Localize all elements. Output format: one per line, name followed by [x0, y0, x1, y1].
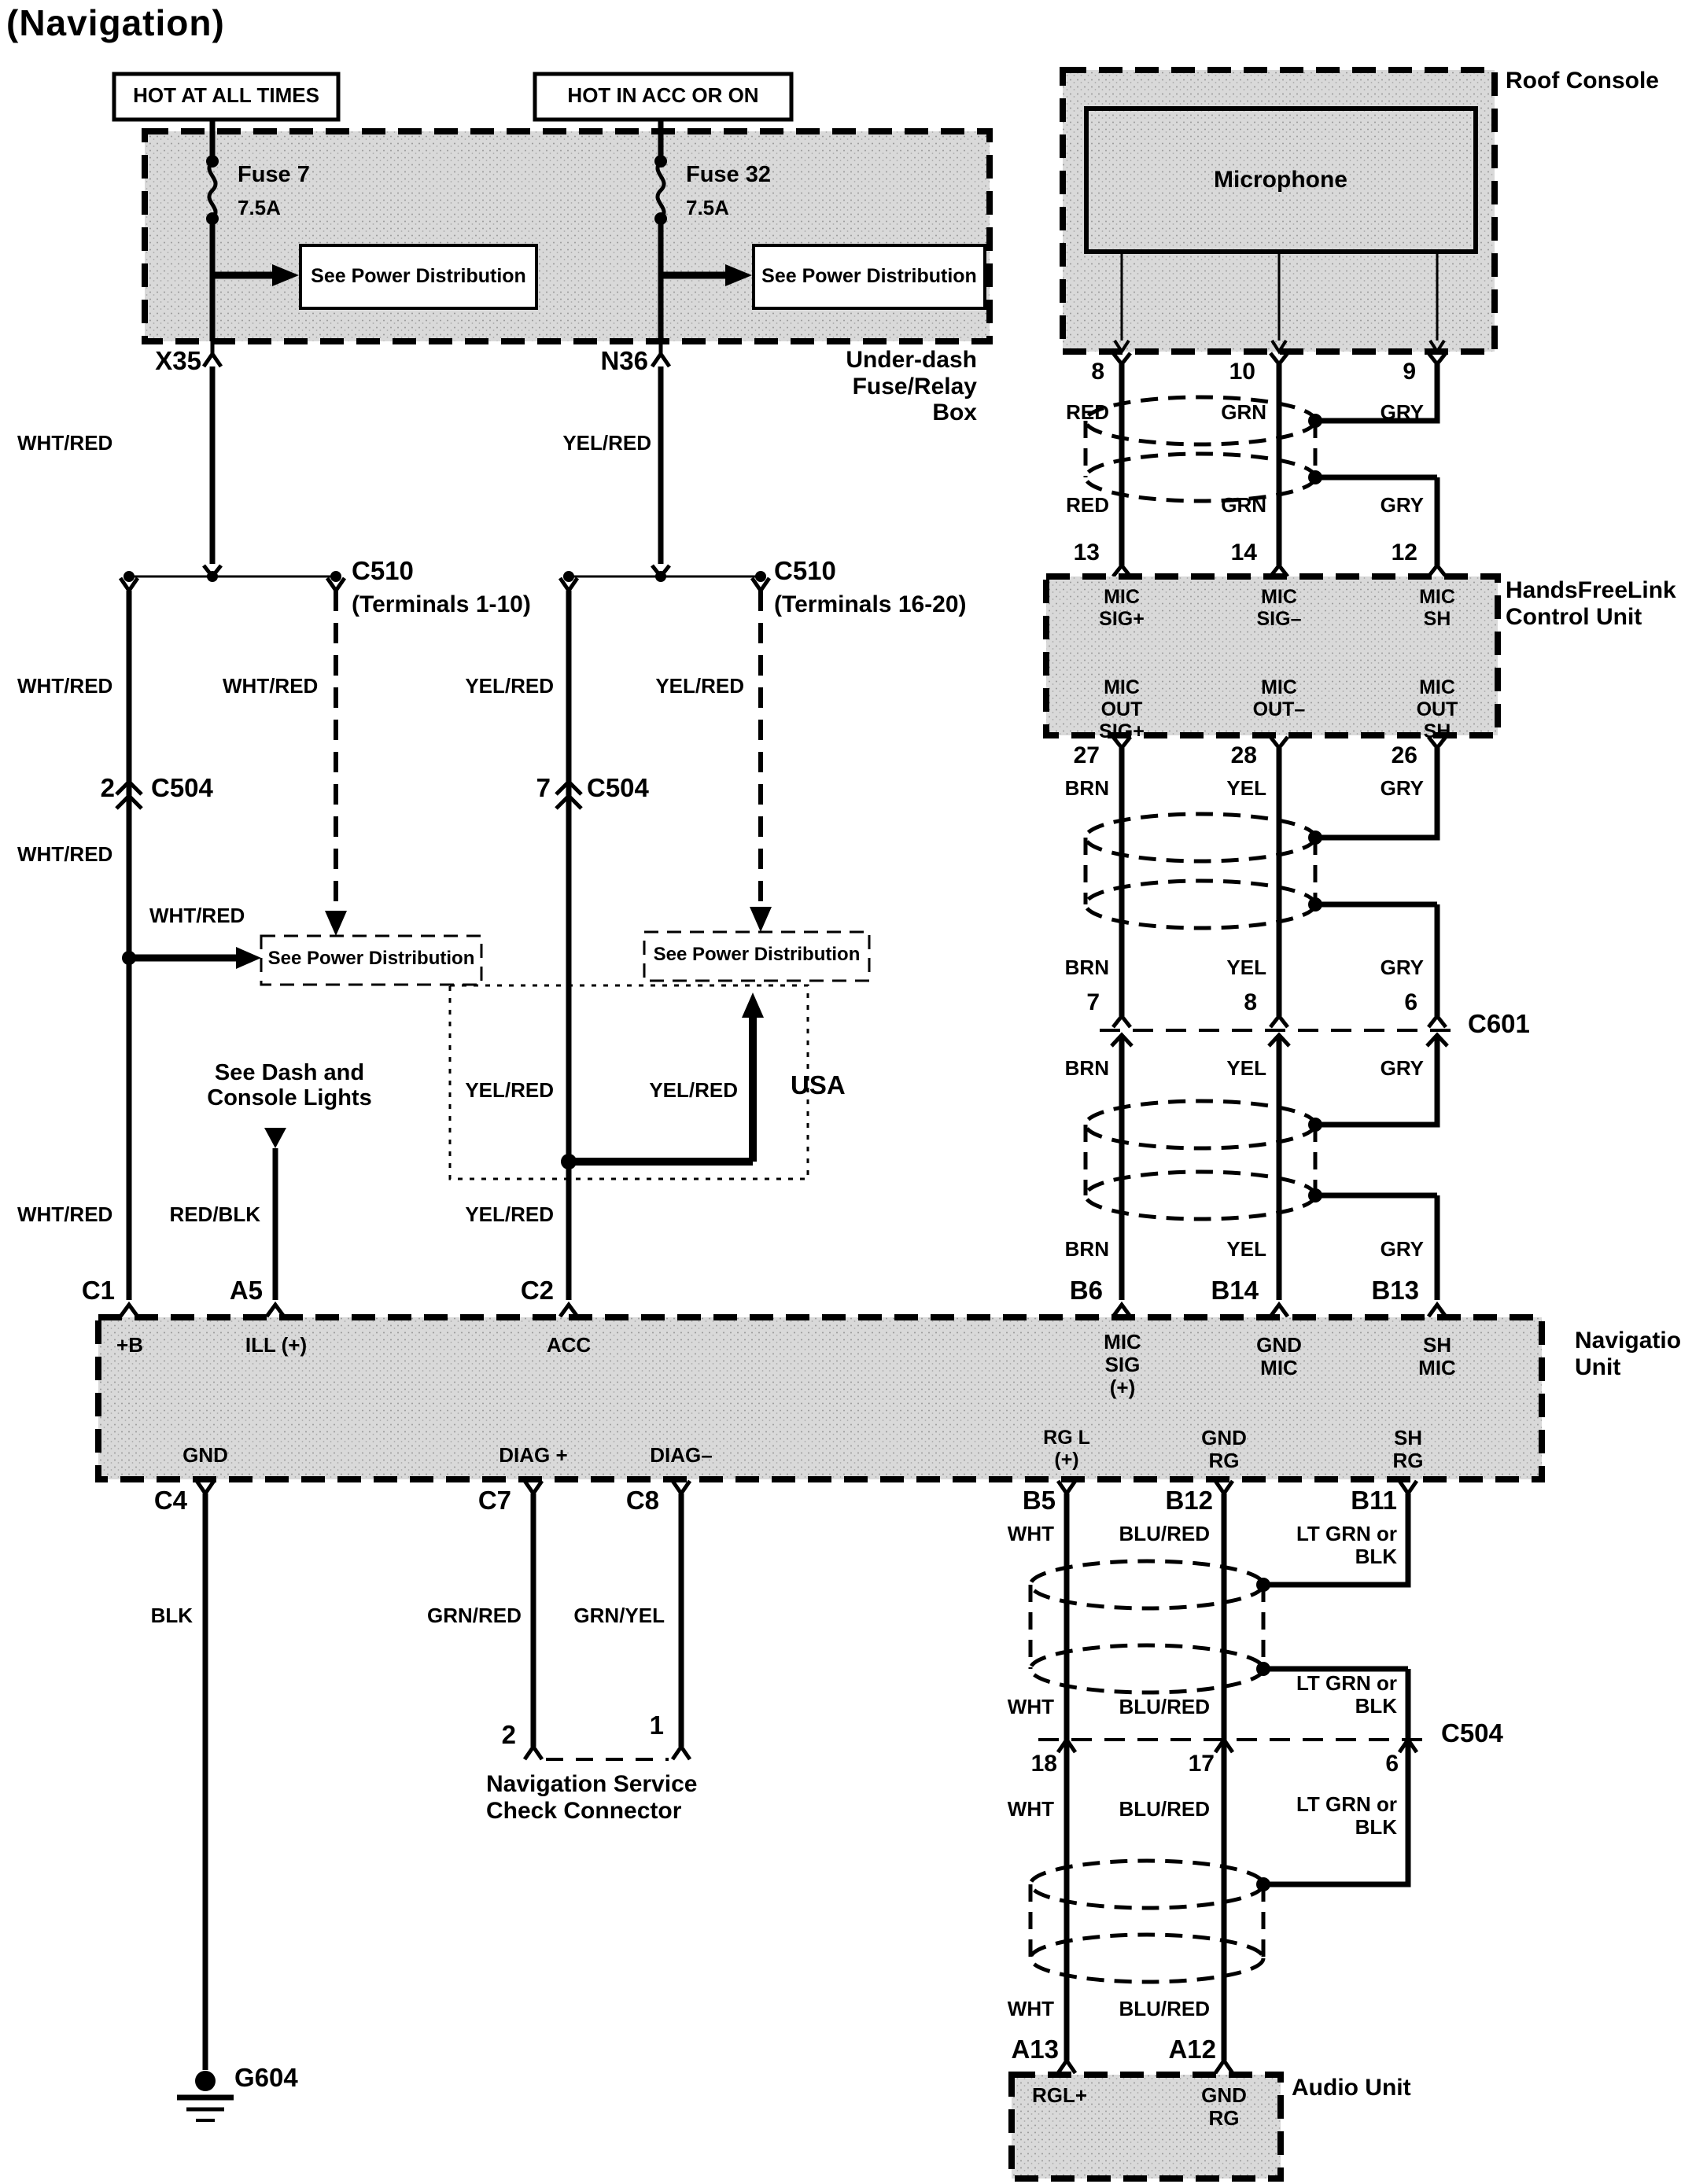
wire-gry-2: GRY [1336, 494, 1424, 517]
c510-left-dashed-branch [261, 591, 481, 985]
hot-at-all-times-label: HOT AT ALL TIMES [114, 84, 338, 107]
nav-pin-b12: B12 [1147, 1486, 1213, 1516]
c504-right-pin: 7 [513, 774, 551, 803]
handsfreelink-label: HandsFreeLink Control Unit [1506, 577, 1681, 630]
connector-c504-left: C504 [151, 774, 245, 803]
hfl-signal-mic-sig-minus: MIC SIG– [1250, 586, 1308, 630]
nav-pin-b11: B11 [1328, 1486, 1397, 1516]
connector-x35: X35 [116, 347, 201, 376]
fuse32-rating: 7.5A [686, 197, 780, 219]
mic-pin-10: 10 [1207, 359, 1255, 385]
see-power-distribution-1: See Power Distribution [304, 265, 533, 287]
nav-pin-c1: C1 [72, 1276, 115, 1306]
connector-c510-left-terminals: (Terminals 1-10) [352, 591, 588, 618]
microphone-label: Microphone [1123, 167, 1438, 193]
wire-blu-red-1: BLU/RED [1106, 1523, 1210, 1545]
hfl-pin-27: 27 [1051, 742, 1100, 769]
c601-pin-6: 6 [1366, 989, 1417, 1016]
wire-brn-2: BRN [1021, 956, 1109, 979]
mic-pin-9: 9 [1378, 359, 1416, 385]
wire-wht-3: WHT [974, 1798, 1054, 1821]
dash-lights-wire [264, 1128, 286, 1317]
hfl-pin-28: 28 [1205, 742, 1257, 769]
nav-pin-c7: C7 [466, 1486, 511, 1516]
wire-wht-red-2: WHT/RED [17, 675, 112, 698]
connector-n36: N36 [560, 347, 648, 376]
hfl-pin-26: 26 [1366, 742, 1417, 769]
x35-wire [204, 341, 221, 576]
c510-right-junction [560, 571, 769, 591]
wire-wht-red-6: WHT/RED [17, 1203, 112, 1226]
wire-brn-4: BRN [1021, 1238, 1109, 1261]
wire-gry-6: GRY [1336, 1238, 1424, 1261]
audio-unit-label: Audio Unit [1292, 2075, 1488, 2101]
nav-pin-c2: C2 [508, 1276, 554, 1306]
nav-signal-rg-l: RG L (+) [1043, 1427, 1090, 1471]
wire-yel-red-4: YEL/RED [463, 1079, 554, 1102]
wire-yel-4: YEL [1178, 1238, 1266, 1261]
c504-left-pin: 2 [77, 774, 115, 803]
wiring-diagram-page: (Navigation) HOT AT ALL TIMES HOT IN ACC… [0, 0, 1681, 2184]
wire-yel-red-2: YEL/RED [463, 675, 554, 698]
wire-red-blk: RED/BLK [168, 1203, 260, 1226]
fuse32-name: Fuse 32 [686, 162, 820, 187]
wire-wht-red-5: WHT/RED [149, 904, 244, 927]
connector-c510-left: C510 [352, 557, 454, 586]
connector-c601: C601 [1468, 1010, 1562, 1039]
wire-grn-yel: GRN/YEL [573, 1604, 665, 1627]
hfl-signal-mic-sh: MIC SH [1408, 586, 1466, 630]
wire-gry-4: GRY [1336, 956, 1424, 979]
audio-pin-a13: A13 [991, 2035, 1059, 2064]
nav-pin-b5: B5 [1005, 1486, 1056, 1516]
nav-pin-b14: B14 [1193, 1276, 1259, 1306]
usa-label: USA [791, 1071, 869, 1100]
connector-c504-lower: C504 [1441, 1719, 1535, 1748]
wire-brn-3: BRN [1021, 1057, 1109, 1080]
nav-signal-sh-mic: SH MIC [1413, 1334, 1462, 1379]
hfl-pin-13: 13 [1051, 540, 1100, 566]
wire-lt-grn-blk-3: LT GRN or BLK [1290, 1793, 1397, 1839]
audio-signal-rgl: RGL+ [1032, 2084, 1119, 2107]
wire-blk: BLK [105, 1604, 193, 1627]
wire-grn-red: GRN/RED [427, 1604, 519, 1627]
roof-console-label: Roof Console [1506, 68, 1679, 94]
nav-signal-mic-sig: MIC SIG (+) [1098, 1331, 1147, 1399]
fuse7-name: Fuse 7 [238, 162, 363, 187]
page-title: (Navigation) [6, 3, 352, 44]
nscc-pin-2: 2 [477, 1721, 516, 1750]
c504-lower-pin-18: 18 [1008, 1751, 1057, 1777]
nav-signal-gnd-mic: GND MIC [1252, 1334, 1306, 1379]
hfl-signal-mic-out-minus: MIC OUT– [1250, 676, 1308, 720]
nav-signal-plus-b: +B [105, 1334, 154, 1357]
hfl-signal-mic-out-sh: MIC OUT SH [1402, 676, 1473, 742]
nav-signal-diag-minus: DIAG– [643, 1444, 719, 1467]
wire-wht-red-4: WHT/RED [17, 843, 112, 866]
nscc-label: Navigation Service Check Connector [486, 1771, 706, 1824]
wire-wht-4: WHT [974, 1998, 1054, 2020]
see-power-distribution-2: See Power Distribution [755, 265, 983, 287]
connector-c510-right-terminals: (Terminals 16-20) [774, 591, 1026, 618]
fuse7-rating: 7.5A [238, 197, 332, 219]
wire-grn-2: GRN [1178, 494, 1266, 517]
audio-signal-gnd-rg: GND RG [1196, 2084, 1252, 2130]
wire-wht-1: WHT [974, 1523, 1054, 1545]
nav-pin-c8: C8 [614, 1486, 659, 1516]
n36-wire [652, 341, 669, 576]
hot-in-acc-or-on-label: HOT IN ACC OR ON [535, 84, 791, 107]
wire-yel-2: YEL [1178, 956, 1266, 979]
wire-brn-1: BRN [1021, 777, 1109, 800]
wire-wht-red-3: WHT/RED [223, 675, 315, 698]
wire-red-1: RED [1021, 401, 1109, 424]
c504-lower-pin-6: 6 [1350, 1751, 1399, 1777]
c601-pin-7: 7 [1051, 989, 1100, 1016]
navigation-unit-label: Navigation Unit [1575, 1328, 1681, 1380]
wire-yel-red-1: YEL/RED [560, 432, 651, 455]
wire-blu-red-2: BLU/RED [1106, 1696, 1210, 1718]
ground-g604-label: G604 [234, 2064, 337, 2093]
wire-lt-grn-blk-1: LT GRN or BLK [1290, 1523, 1397, 1568]
wire-gry-5: GRY [1336, 1057, 1424, 1080]
nav-signal-acc: ACC [535, 1334, 603, 1357]
wire-yel-red-6: YEL/RED [463, 1203, 554, 1226]
wire-gry-1: GRY [1336, 401, 1424, 424]
mic-grn-wire [1270, 364, 1288, 576]
see-power-distribution-3: See Power Distribution [265, 948, 477, 970]
wire-red-2: RED [1021, 494, 1109, 517]
audio-pin-a12: A12 [1148, 2035, 1216, 2064]
nav-signal-ill: ILL (+) [238, 1334, 314, 1357]
wire-wht-red-1: WHT/RED [17, 432, 112, 455]
mic-red-wire [1113, 364, 1130, 576]
see-power-distribution-4: See Power Distribution [648, 945, 865, 966]
nav-pin-b13: B13 [1350, 1276, 1419, 1306]
wire-blu-red-3: BLU/RED [1106, 1798, 1210, 1821]
nav-signal-sh-rg: SH RG [1383, 1427, 1433, 1472]
c510-left-junction [120, 571, 345, 591]
wire-yel-1: YEL [1178, 777, 1266, 800]
acc-main-wire [556, 591, 581, 1317]
hfl-signal-mic-out-sig: MIC OUT SIG+ [1081, 676, 1163, 742]
gnd-wire-g604 [177, 1481, 234, 2120]
wire-lt-grn-blk-2: LT GRN or BLK [1290, 1672, 1397, 1718]
wire-gry-3: GRY [1336, 777, 1424, 800]
connector-c510-right: C510 [774, 557, 876, 586]
hfl-pin-14: 14 [1205, 540, 1257, 566]
c601-pin-8: 8 [1205, 989, 1257, 1016]
mic-pin-8: 8 [1067, 359, 1104, 385]
wire-grn-1: GRN [1178, 401, 1266, 424]
nav-pin-a5: A5 [219, 1276, 263, 1306]
wire-yel-red-3: YEL/RED [653, 675, 744, 698]
wire-wht-2: WHT [974, 1696, 1054, 1718]
nav-pin-c4: C4 [142, 1486, 187, 1516]
connector-c504-right: C504 [587, 774, 681, 803]
see-dash-console-lights-note: See Dash and Console Lights [195, 1060, 384, 1111]
hfl-pin-12: 12 [1366, 540, 1417, 566]
wire-yel-3: YEL [1178, 1057, 1266, 1080]
wire-yel-red-5: YEL/RED [645, 1079, 738, 1102]
nav-signal-diag-plus: DIAG + [496, 1444, 571, 1467]
c504-lower-pin-17: 17 [1166, 1751, 1215, 1777]
nav-pin-b6: B6 [1054, 1276, 1103, 1306]
wire-blu-red-4: BLU/RED [1106, 1998, 1210, 2020]
underdash-box-label: Under-dash Fuse/Relay Box [809, 347, 977, 426]
navigation-unit-box [98, 1317, 1542, 1479]
nscc-pin-1: 1 [625, 1711, 664, 1740]
hfl-signal-mic-sig-plus: MIC SIG+ [1093, 586, 1151, 630]
nav-signal-gnd-rg: GND RG [1197, 1427, 1251, 1472]
nav-signal-gnd: GND [176, 1444, 234, 1467]
